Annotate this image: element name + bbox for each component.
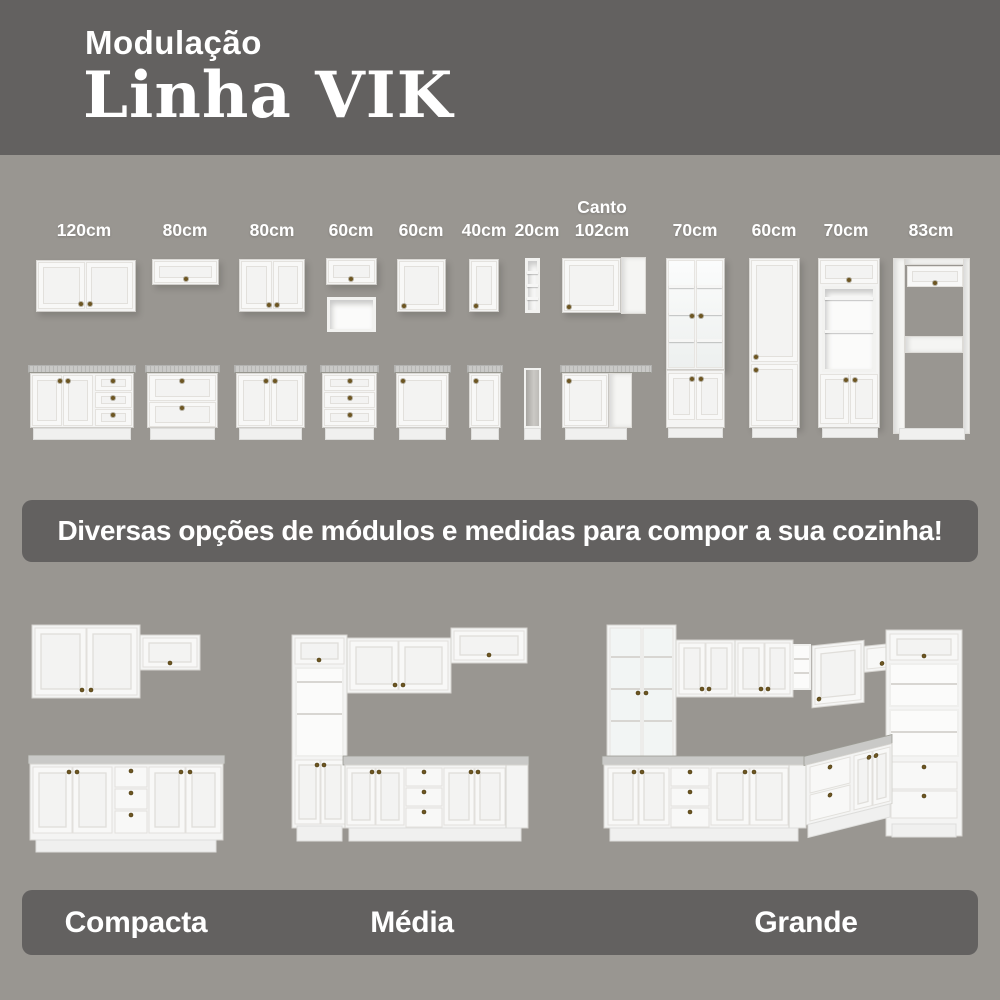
shelf [825,330,873,333]
media-wall-cabinets [347,628,527,693]
frame-middle-shelf [905,336,963,353]
knob [567,379,571,383]
module-60cm-open-shelf [327,297,376,332]
plinth [668,428,723,438]
kitchen-sizes-band: Compacta Média Grande [22,890,978,955]
shelf [669,285,694,288]
plinth [399,428,446,440]
corner-return-door [609,373,632,428]
media-base-cabinets [343,756,529,841]
module-size-label-prefix: Canto [577,197,627,218]
knob [111,379,115,383]
kitchen-grande-illustration [598,612,978,860]
knob [402,304,406,308]
plinth [752,428,797,438]
door [751,260,798,362]
countertop [234,365,307,373]
compacta-base-cabinets [28,755,225,852]
knob [690,377,694,381]
knob [66,379,70,383]
drawer [324,409,375,426]
knob [844,378,848,382]
door [564,260,619,311]
drawer [95,392,132,408]
compacta-wall-cabinets [32,625,200,698]
knob [184,277,188,281]
plinth [325,428,374,440]
knob [180,406,184,410]
plinth [33,428,131,440]
drawer [95,409,132,426]
knob [348,379,352,383]
plinth [565,428,627,440]
knob [853,378,857,382]
door [32,375,62,426]
knob [933,281,937,285]
countertop [467,365,503,373]
countertop [394,365,451,373]
door [471,261,497,310]
module-size-label: 70cm [673,220,718,241]
knob [267,303,271,307]
countertop [560,365,652,373]
knob [474,304,478,308]
plinth [524,428,541,440]
banner-text: Diversas opções de módulos e medidas par… [57,515,942,547]
countertop [145,365,220,373]
module-size-label: 60cm [752,220,797,241]
frame-left-panel [893,258,905,434]
shelf [697,339,722,342]
door [86,262,133,309]
knob [401,379,405,383]
plinth [471,428,499,440]
knob [58,379,62,383]
plinth [150,428,215,440]
door [241,261,272,309]
knob [699,314,703,318]
knob [111,396,115,400]
knob [88,302,92,306]
shelf [825,297,873,300]
header-kicker: Modulação [85,24,262,62]
knob [690,314,694,318]
grande-glass-hutch [607,625,676,764]
module-size-label: 60cm [329,220,374,241]
kitchen-size-grande: Grande [754,906,857,940]
knob [754,368,758,372]
knob [348,413,352,417]
door [751,364,798,426]
corner-side-panel [621,257,646,314]
media-tall-tower [292,635,347,841]
grande-wall-cabinets [676,637,900,708]
module-size-label: 80cm [250,220,295,241]
grande-base-left [602,756,806,841]
page-title: Linha VIK [83,58,453,133]
knob [754,355,758,359]
knob [474,379,478,383]
countertop [320,365,379,373]
module-size-label: 83cm [909,220,954,241]
shelf [527,284,538,287]
frame-right-panel [963,258,970,434]
plinth [239,428,302,440]
kitchen-size-media: Média [370,906,454,940]
door [398,375,447,426]
door [564,375,607,426]
door [38,262,85,309]
knob [111,413,115,417]
countertop [28,365,136,373]
drawer [324,375,375,391]
module-size-label: 40cm [462,220,507,241]
shelf [527,271,538,274]
drawer [324,392,375,408]
module-size-label: 102cm [575,220,630,241]
knob [273,379,277,383]
modulation-infographic: Modulação Linha VIK 120cm 80cm 80cm 60cm… [0,0,1000,1000]
frame-top [905,258,970,265]
shelf [697,285,722,288]
door [399,261,444,310]
kitchen-compacta-illustration [28,615,228,860]
plinth [899,428,965,440]
shelf [669,339,694,342]
kitchen-size-compacta: Compacta [65,906,208,940]
knob [348,396,352,400]
knob [275,303,279,307]
knob [180,379,184,383]
grande-tall-tower [886,630,962,837]
module-size-label: 80cm [163,220,208,241]
kitchen-media-illustration [283,612,535,857]
header-band: Modulação Linha VIK [0,0,1000,155]
module-size-label: 20cm [515,220,560,241]
knob [349,277,353,281]
knob [699,377,703,381]
module-size-label: 70cm [824,220,869,241]
door [273,261,303,309]
drawer [95,375,132,391]
grande-base-right [804,735,892,839]
plinth [822,428,878,438]
banner: Diversas opções de módulos e medidas par… [22,500,978,562]
knob [264,379,268,383]
knob [79,302,83,306]
knob [847,278,851,282]
shelf [527,297,538,300]
module-size-label: 60cm [399,220,444,241]
module-size-label: 120cm [57,220,112,241]
knob [567,305,571,309]
